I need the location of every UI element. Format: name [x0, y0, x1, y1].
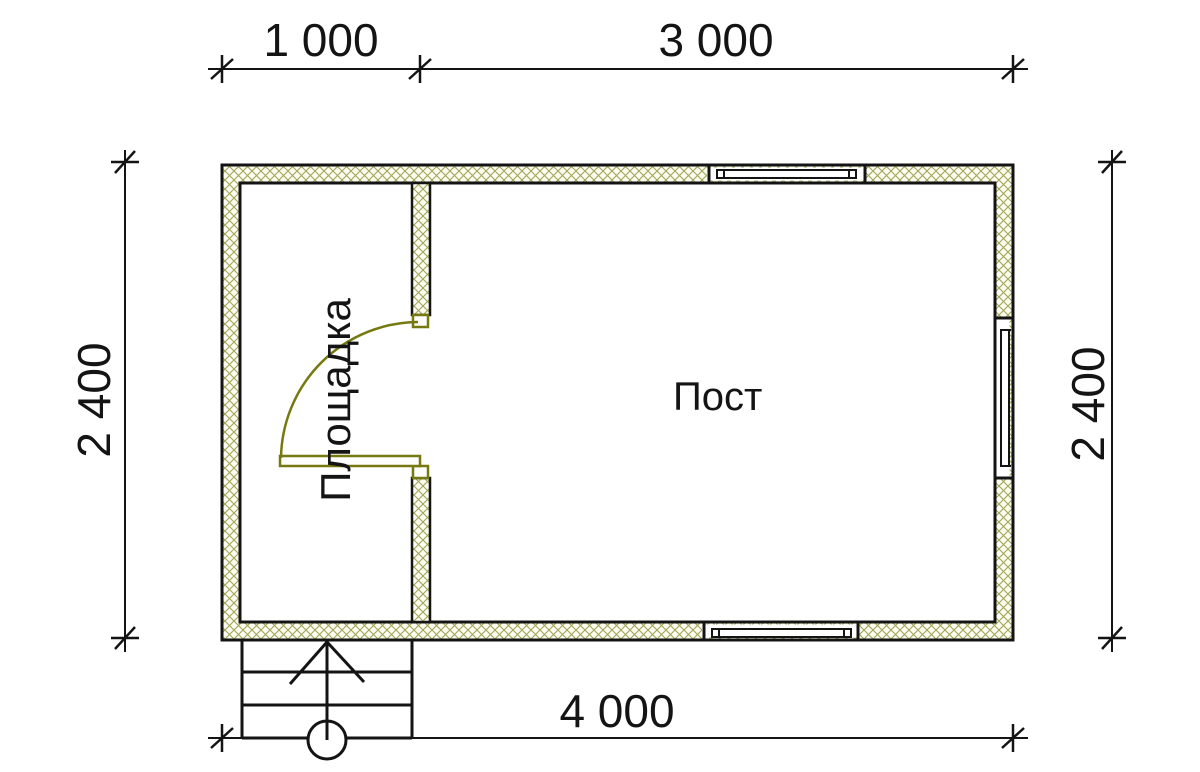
dimension-label-top-left: 1 000	[263, 14, 378, 66]
dimension-label-right: 2 400	[1062, 346, 1114, 461]
entrance-direction-arrow	[290, 641, 364, 740]
window-top-glazing	[717, 170, 856, 178]
floor-plan-page: VANDA	[0, 0, 1200, 772]
dimension-label-top-right: 3 000	[658, 14, 773, 66]
window-bottom-glazing	[712, 629, 851, 637]
partition-upper-segment	[412, 183, 430, 315]
dimension-label-bottom: 4 000	[559, 685, 674, 737]
dimension-label-left: 2 400	[68, 342, 120, 457]
window-bottom	[702, 623, 859, 639]
partition-lower-segment	[412, 478, 430, 622]
window-top	[707, 166, 866, 182]
window-right	[996, 317, 1012, 479]
door-hinge-bottom	[413, 466, 428, 478]
window-right-glazing	[1001, 330, 1009, 466]
room-label-platform: Площадка	[312, 298, 359, 502]
room-label-post: Пост	[673, 375, 762, 419]
floor-plan-canvas: VANDA	[0, 0, 1200, 772]
